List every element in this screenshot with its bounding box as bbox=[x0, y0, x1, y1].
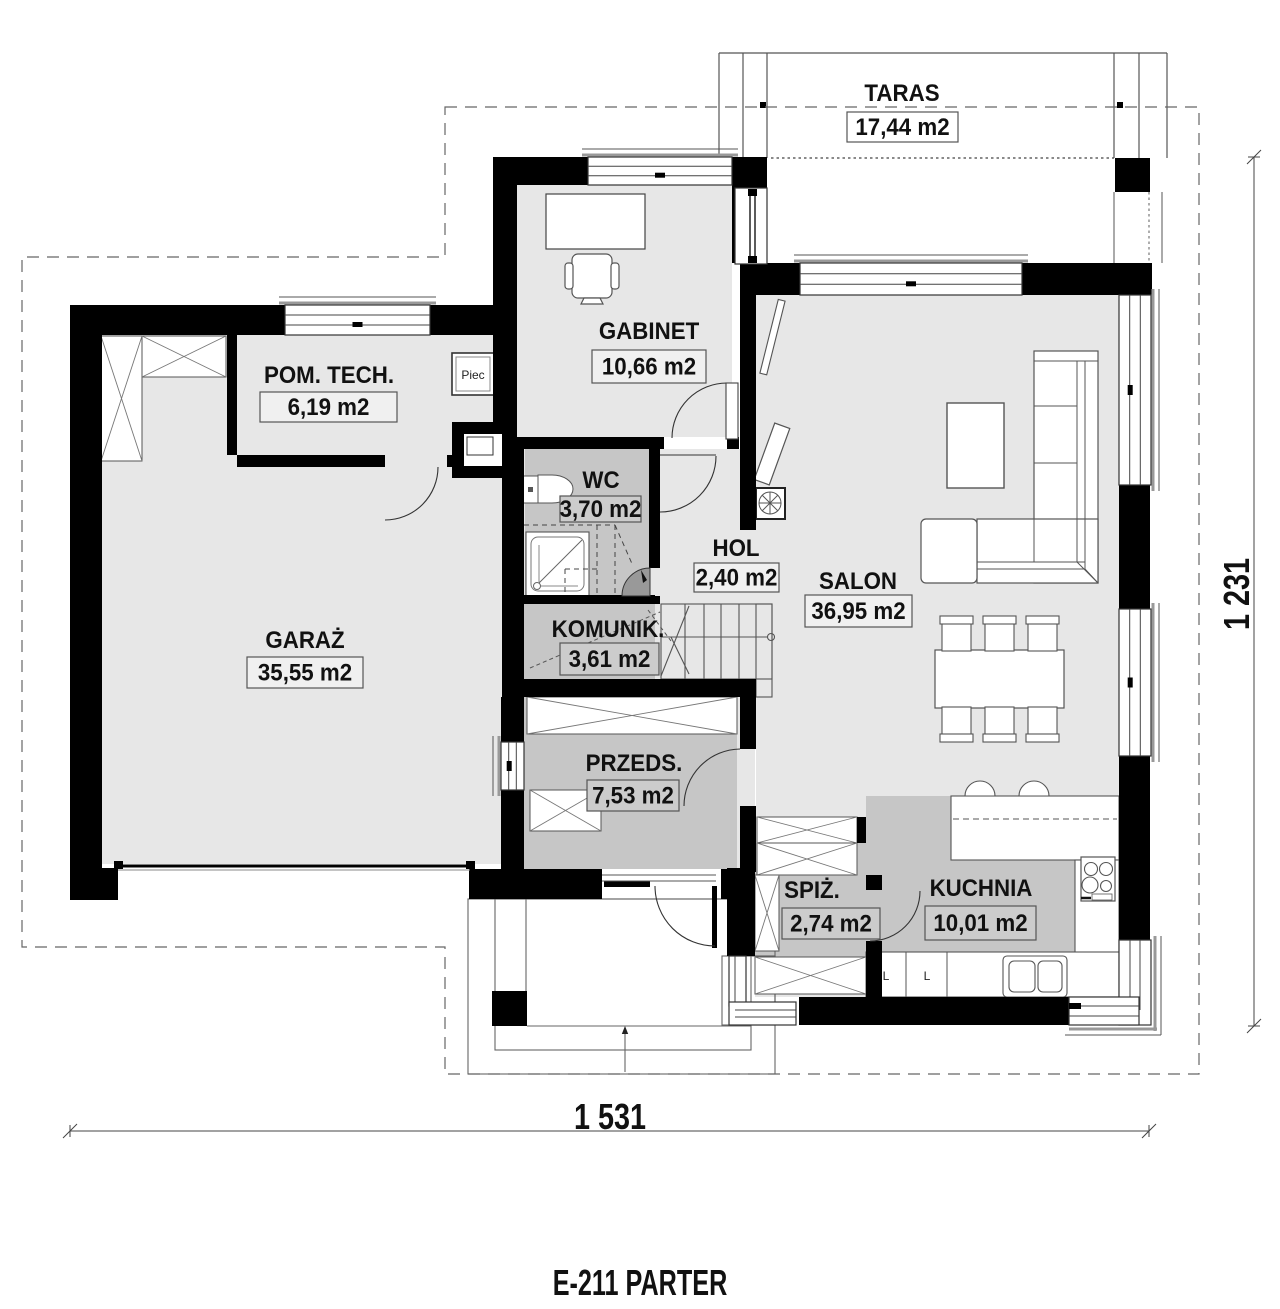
svg-text:KUCHNIA: KUCHNIA bbox=[930, 874, 1033, 901]
svg-text:GABINET: GABINET bbox=[599, 317, 699, 344]
svg-text:10,01 m2: 10,01 m2 bbox=[933, 909, 1027, 936]
svg-text:10,66 m2: 10,66 m2 bbox=[602, 353, 696, 380]
svg-text:1 531: 1 531 bbox=[574, 1096, 646, 1137]
svg-text:2,40 m2: 2,40 m2 bbox=[696, 564, 778, 591]
svg-text:1 231: 1 231 bbox=[1216, 558, 1257, 630]
svg-text:HOL: HOL bbox=[712, 534, 759, 561]
svg-text:KOMUNIK.: KOMUNIK. bbox=[552, 615, 665, 642]
svg-text:6,19 m2: 6,19 m2 bbox=[288, 393, 370, 420]
svg-text:GARAŻ: GARAŻ bbox=[265, 626, 344, 653]
svg-text:L: L bbox=[883, 969, 890, 983]
svg-text:POM. TECH.: POM. TECH. bbox=[264, 361, 394, 388]
svg-text:E-211 PARTER: E-211 PARTER bbox=[553, 1263, 728, 1304]
svg-text:35,55 m2: 35,55 m2 bbox=[258, 659, 352, 686]
svg-text:36,95 m2: 36,95 m2 bbox=[811, 597, 905, 624]
svg-text:PRZEDS.: PRZEDS. bbox=[586, 749, 683, 776]
svg-text:3,70 m2: 3,70 m2 bbox=[560, 495, 642, 522]
svg-text:3,61 m2: 3,61 m2 bbox=[569, 645, 651, 672]
svg-text:Piec: Piec bbox=[461, 368, 484, 382]
svg-text:17,44 m2: 17,44 m2 bbox=[855, 113, 949, 140]
svg-text:WC: WC bbox=[582, 466, 619, 493]
svg-text:2,74 m2: 2,74 m2 bbox=[790, 910, 872, 937]
svg-text:L: L bbox=[924, 969, 931, 983]
svg-text:7,53 m2: 7,53 m2 bbox=[592, 782, 674, 809]
svg-text:TARAS: TARAS bbox=[864, 79, 939, 106]
svg-text:SALON: SALON bbox=[819, 567, 897, 594]
svg-text:SPIŻ.: SPIŻ. bbox=[784, 876, 840, 903]
